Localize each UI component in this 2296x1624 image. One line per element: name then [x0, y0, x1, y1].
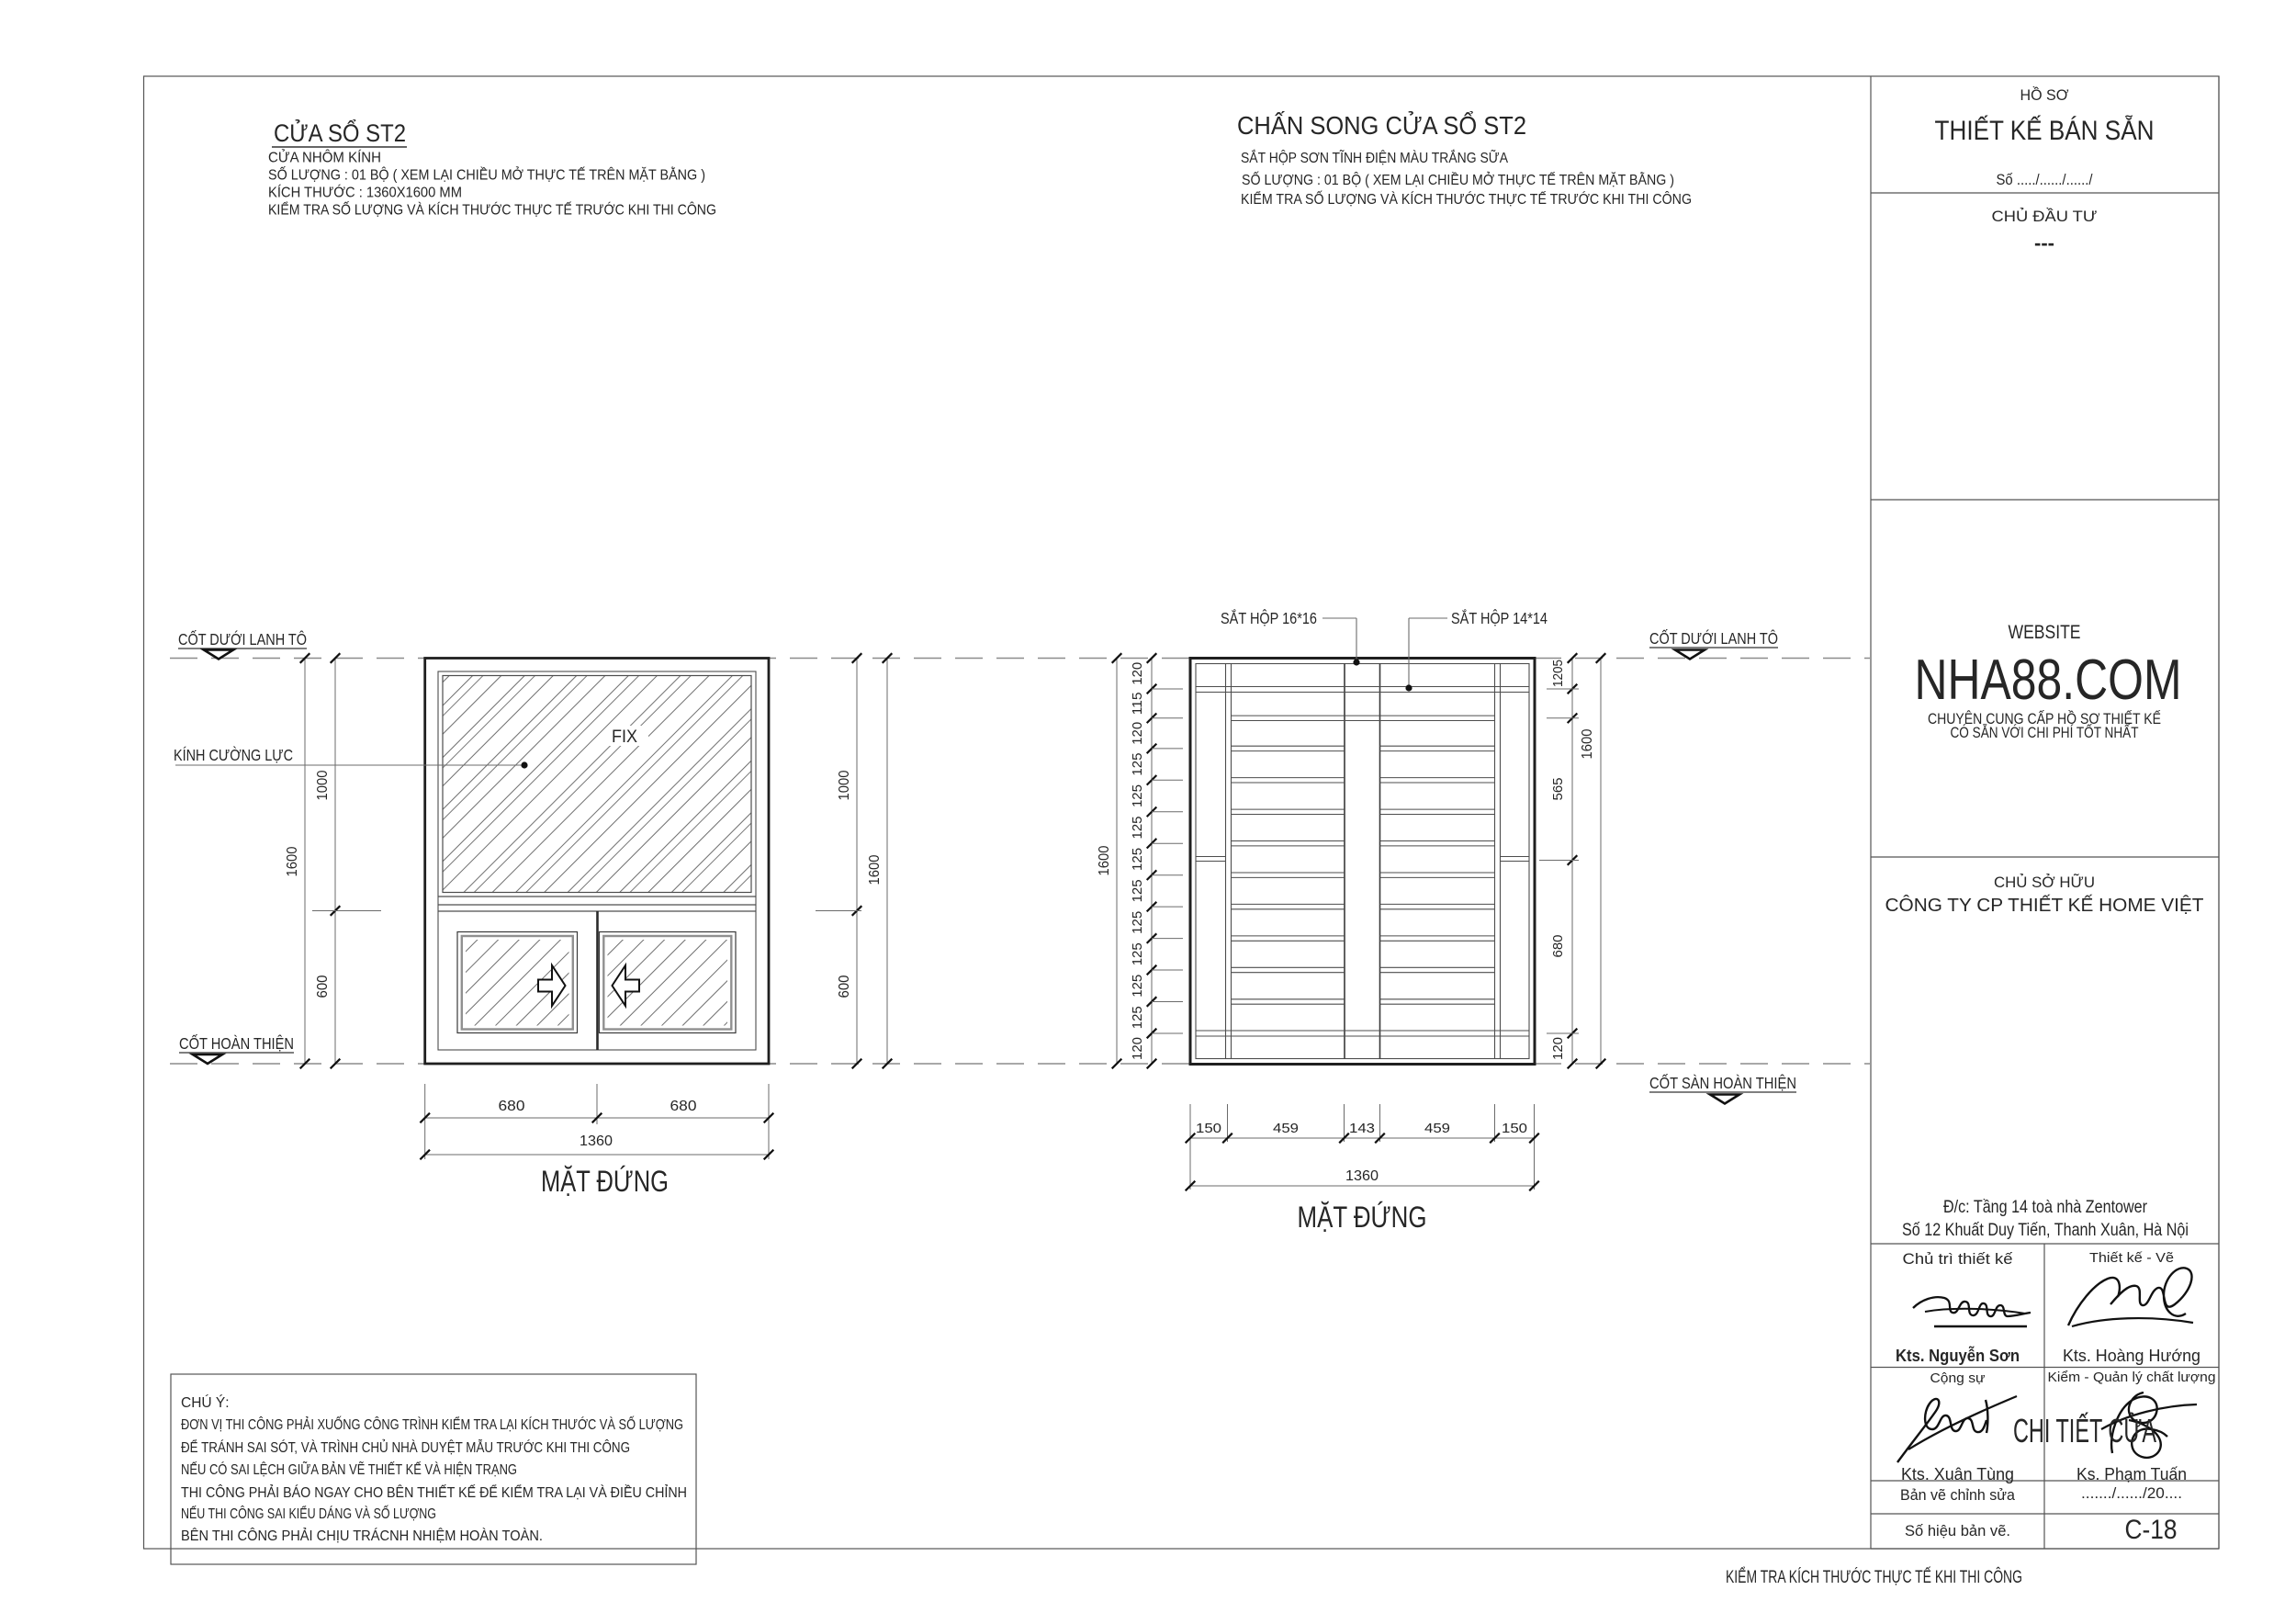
svg-text:THIẾT KẾ BÁN SẴN: THIẾT KẾ BÁN SẴN [1935, 114, 2155, 146]
svg-text:Kts. Xuân Tùng: Kts. Xuân Tùng [1901, 1465, 2014, 1483]
svg-text:125: 125 [1130, 848, 1145, 871]
svg-text:SẮT HỘP 14*14: SẮT HỘP 14*14 [1451, 608, 1548, 627]
svg-text:SỐ LƯỢNG : 01 BỘ ( XEM LẠI CHI: SỐ LƯỢNG : 01 BỘ ( XEM LẠI CHIỀU MỞ THỰC… [1242, 172, 1674, 188]
svg-text:125: 125 [1130, 942, 1145, 965]
svg-text:120: 120 [1550, 1037, 1566, 1060]
svg-text:NẾU THI CÔNG SAI KIỂU DÁNG VÀ: NẾU THI CÔNG SAI KIỂU DÁNG VÀ SỐ LƯỢNG [181, 1506, 436, 1522]
svg-text:Số 12 Khuất Duy Tiến, Thanh Xu: Số 12 Khuất Duy Tiến, Thanh Xuân, Hà Nội [1902, 1221, 2189, 1240]
svg-text:CỬA NHÔM KÍNH: CỬA NHÔM KÍNH [268, 150, 381, 166]
svg-text:CỐT HOÀN THIỆN: CỐT HOÀN THIỆN [179, 1033, 294, 1053]
svg-text:143: 143 [1349, 1121, 1375, 1136]
svg-text:KIỂM TRA SỐ LƯỢNG VÀ KÍCH THƯỚ: KIỂM TRA SỐ LƯỢNG VÀ KÍCH THƯỚC THỰC TẾ … [268, 202, 716, 219]
svg-text:SẮT HỘP 16*16: SẮT HỘP 16*16 [1221, 608, 1317, 627]
svg-text:115: 115 [1130, 692, 1145, 715]
svg-text:FIX: FIX [612, 727, 637, 747]
svg-text:1360: 1360 [1345, 1168, 1379, 1184]
svg-text:BÊN THI CÔNG PHẢI CHỊU TRÁCNH: BÊN THI CÔNG PHẢI CHỊU TRÁCNH NHIỆM HOÀN… [181, 1528, 543, 1544]
svg-text:C-18: C-18 [2125, 1515, 2178, 1545]
svg-text:SỐ LƯỢNG : 01 BỘ ( XEM LẠI CH: SỐ LƯỢNG : 01 BỘ ( XEM LẠI CHIỀU MỞ THỰC… [268, 167, 705, 184]
svg-text:125: 125 [1130, 753, 1145, 776]
svg-text:MẶT ĐỨNG: MẶT ĐỨNG [1298, 1201, 1427, 1234]
svg-text:Số hiệu bản vẽ.: Số hiệu bản vẽ. [1905, 1522, 2010, 1539]
svg-text:CỬA SỔ ST2: CỬA SỔ ST2 [274, 118, 406, 147]
svg-text:565: 565 [1550, 778, 1566, 801]
svg-text:120: 120 [1130, 722, 1145, 745]
svg-text:1360: 1360 [580, 1133, 613, 1149]
svg-text:CHẤN SONG CỬA SỔ ST2: CHẤN SONG CỬA SỔ ST2 [1237, 110, 1526, 140]
svg-text:120: 120 [1130, 662, 1145, 685]
svg-text:ĐƠN VỊ THI CÔNG PHẢI XUỐNG CÔN: ĐƠN VỊ THI CÔNG PHẢI XUỐNG CÔNG TRÌNH KI… [181, 1416, 683, 1433]
svg-text:680: 680 [670, 1099, 697, 1114]
svg-text:Chủ trì thiết kế: Chủ trì thiết kế [1903, 1250, 2014, 1268]
svg-text:1205: 1205 [1550, 660, 1566, 687]
svg-text:680: 680 [499, 1099, 525, 1114]
svg-text:150: 150 [1196, 1121, 1221, 1136]
svg-text:KÍCH THƯỚC : 1360X1600 MM: KÍCH THƯỚC : 1360X1600 MM [268, 186, 462, 201]
svg-text:WEBSITE: WEBSITE [2009, 622, 2081, 643]
svg-text:NẾU CÓ SAI LỆCH GIỮA BẢN VẼ TH: NẾU CÓ SAI LỆCH GIỮA BẢN VẼ THIẾT KẾ VÀ … [181, 1462, 517, 1478]
svg-text:ĐỂ TRÁNH SAI SÓT, VÀ TRÌNH CHỦ: ĐỂ TRÁNH SAI SÓT, VÀ TRÌNH CHỦ NHÀ DUYỆT… [181, 1439, 630, 1456]
svg-text:KIỂM TRA SỐ LƯỢNG VÀ KÍCH THƯỚ: KIỂM TRA SỐ LƯỢNG VÀ KÍCH THƯỚC THỰC TẾ … [1241, 191, 1692, 208]
svg-text:THI CÔNG PHẢI BÁO NGAY CHO BÊN: THI CÔNG PHẢI BÁO NGAY CHO BÊN THIẾT KẾ … [181, 1484, 687, 1501]
svg-text:1600: 1600 [1580, 728, 1595, 759]
svg-text:125: 125 [1130, 784, 1145, 807]
svg-text:......./....../20....: ......./....../20.... [2081, 1484, 2182, 1502]
svg-text:CHÚ Ý:: CHÚ Ý: [181, 1395, 230, 1411]
svg-text:CỐT DƯỚI LANH TÔ: CỐT DƯỚI LANH TÔ [178, 629, 307, 648]
svg-text:KÍNH CƯỜNG LỰC: KÍNH CƯỜNG LỰC [174, 745, 293, 764]
svg-text:---: --- [2034, 231, 2054, 254]
svg-text:1600: 1600 [285, 846, 300, 876]
svg-text:600: 600 [315, 975, 331, 998]
svg-text:1600: 1600 [867, 854, 883, 885]
svg-text:NHA88.COM: NHA88.COM [1915, 648, 2182, 712]
svg-text:459: 459 [1424, 1121, 1450, 1136]
svg-text:Bản vẽ chỉnh sửa: Bản vẽ chỉnh sửa [1900, 1486, 2016, 1504]
svg-text:680: 680 [1550, 935, 1566, 958]
svg-text:Đ/c: Tầng 14 toà nhà Zentower: Đ/c: Tầng 14 toà nhà Zentower [1943, 1198, 2148, 1217]
svg-text:MẶT ĐỨNG: MẶT ĐỨNG [541, 1165, 669, 1198]
svg-text:SẮT HỘP SƠN TĨNH ĐIỆN MÀU TRẮN: SẮT HỘP SƠN TĨNH ĐIỆN MÀU TRẮNG SỮA [1241, 150, 1509, 166]
svg-text:Số ...../....../....../: Số ...../....../....../ [1997, 172, 2093, 188]
svg-text:125: 125 [1130, 1006, 1145, 1029]
svg-text:125: 125 [1130, 879, 1145, 902]
svg-text:CÔNG TY CP THIẾT KẾ HOME VIỆT: CÔNG TY CP THIẾT KẾ HOME VIỆT [1885, 895, 2204, 916]
svg-text:459: 459 [1273, 1121, 1299, 1136]
svg-text:150: 150 [1502, 1121, 1527, 1136]
svg-text:CHỦ ĐẦU TƯ: CHỦ ĐẦU TƯ [1992, 208, 2098, 225]
svg-text:1600: 1600 [1097, 845, 1112, 875]
svg-text:KIỂM TRA KÍCH THƯỚC THỰC TẾ KH: KIỂM TRA KÍCH THƯỚC THỰC TẾ KHI THI CÔNG [1726, 1567, 2022, 1587]
svg-text:CỐT DƯỚI LANH TÔ: CỐT DƯỚI LANH TÔ [1649, 628, 1778, 648]
svg-text:Kts. Hoàng Hướng: Kts. Hoàng Hướng [2063, 1347, 2200, 1365]
svg-text:125: 125 [1130, 817, 1145, 840]
svg-text:CHỦ SỞ HỮU: CHỦ SỞ HỮU [1994, 874, 2095, 891]
svg-text:Thiết kế - Vẽ: Thiết kế - Vẽ [2089, 1250, 2174, 1266]
svg-text:1000: 1000 [315, 770, 331, 800]
svg-text:Cộng sự: Cộng sự [1930, 1370, 1986, 1386]
svg-text:HỒ SƠ: HỒ SƠ [2020, 86, 2069, 104]
svg-text:120: 120 [1130, 1037, 1145, 1060]
svg-text:600: 600 [837, 975, 852, 998]
svg-text:Ks. Phạm Tuấn: Ks. Phạm Tuấn [2077, 1465, 2187, 1483]
svg-text:Kts. Nguyễn Sơn: Kts. Nguyễn Sơn [1896, 1346, 2020, 1365]
svg-text:CHI TIẾT CỬA: CHI TIẾT CỬA [2013, 1411, 2156, 1449]
svg-text:CÓ SẴN VỚI CHI PHÍ TỐT NHẤT: CÓ SẴN VỚI CHI PHÍ TỐT NHẤT [1951, 723, 2139, 741]
svg-text:Kiểm - Quản lý chất lượng: Kiểm - Quản lý chất lượng [2048, 1370, 2216, 1385]
svg-text:1000: 1000 [837, 770, 852, 800]
svg-text:CỐT SÀN HOÀN THIỆN: CỐT SÀN HOÀN THIỆN [1649, 1073, 1796, 1092]
svg-text:125: 125 [1130, 911, 1145, 934]
svg-text:125: 125 [1130, 975, 1145, 998]
